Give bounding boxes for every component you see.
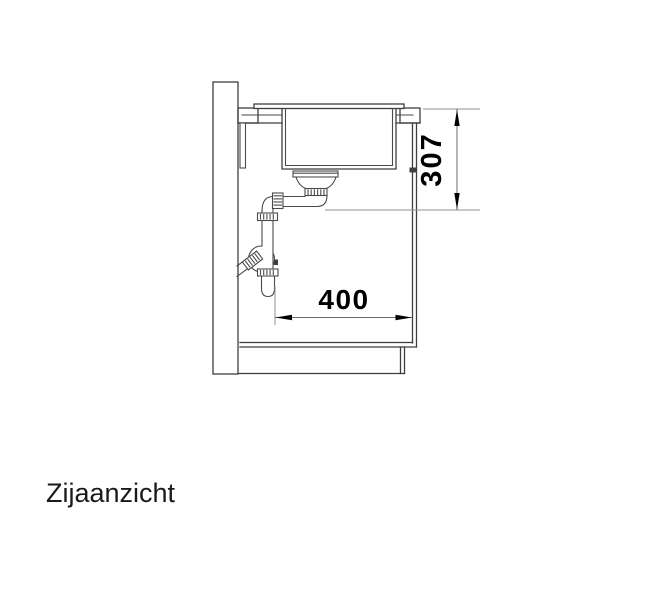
dimension-400: 400: [275, 284, 413, 325]
nut-vertical-pipe: [258, 213, 278, 221]
sink: [240, 104, 413, 169]
arrow-up-icon: [454, 110, 459, 127]
arrow-right-icon: [396, 315, 413, 320]
arrow-left-icon: [276, 315, 293, 320]
wall-section: [213, 82, 238, 374]
nut-cup: [258, 269, 279, 276]
arrow-down-icon: [454, 193, 459, 210]
drawing-page: 307 400 Zijaanzicht: [0, 0, 651, 600]
drain-collar: [305, 189, 327, 196]
technical-drawing: 307 400 Zijaanzicht: [0, 0, 651, 600]
dimension-value-307: 307: [416, 132, 448, 186]
drain-flange: [293, 171, 338, 177]
drawing-title: Zijaanzicht: [46, 478, 176, 508]
siphon-trap: [237, 193, 283, 297]
wall-strip: [240, 123, 246, 168]
nut-elbow: [273, 193, 284, 209]
trap-cup: [262, 276, 275, 297]
drain-assembly: [283, 171, 338, 207]
drain-bowl: [296, 177, 336, 189]
dimension-value-400: 400: [318, 284, 369, 315]
sink-basin: [282, 109, 396, 169]
drain-pipe-horizontal: [283, 196, 327, 207]
sink-rim: [254, 104, 404, 109]
trap-clip: [274, 260, 278, 266]
cabinet-plinth: [238, 347, 405, 374]
trap-elbow: [262, 197, 273, 212]
dimension-307: 307: [325, 109, 480, 210]
